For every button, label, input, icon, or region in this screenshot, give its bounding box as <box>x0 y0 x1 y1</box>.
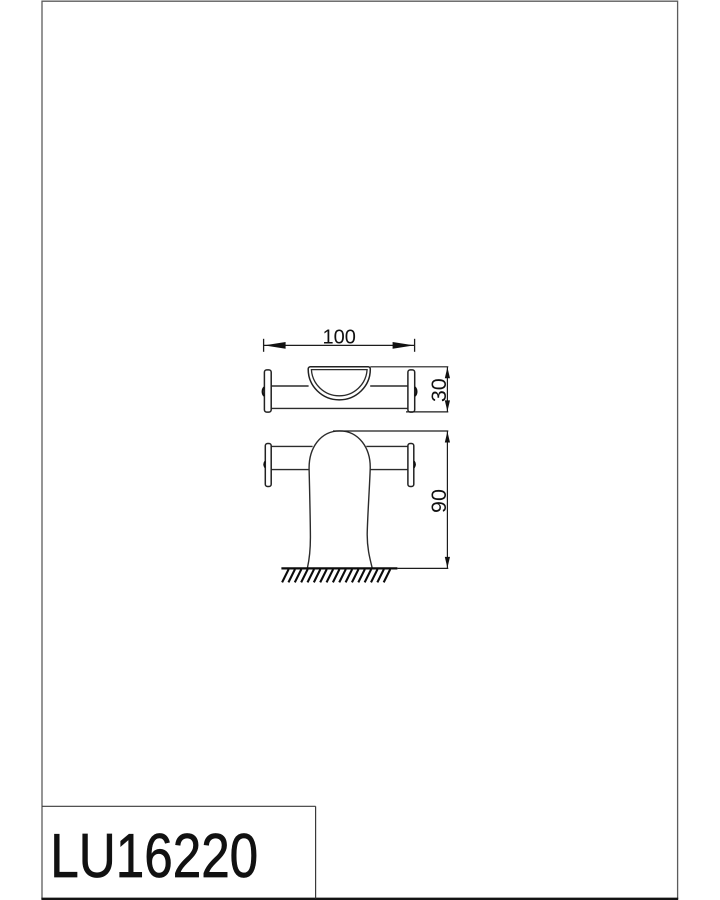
svg-text:100: 100 <box>323 327 356 349</box>
svg-text:30: 30 <box>427 378 451 402</box>
svg-text:LU16220: LU16220 <box>50 822 258 891</box>
svg-text:90: 90 <box>427 489 451 513</box>
